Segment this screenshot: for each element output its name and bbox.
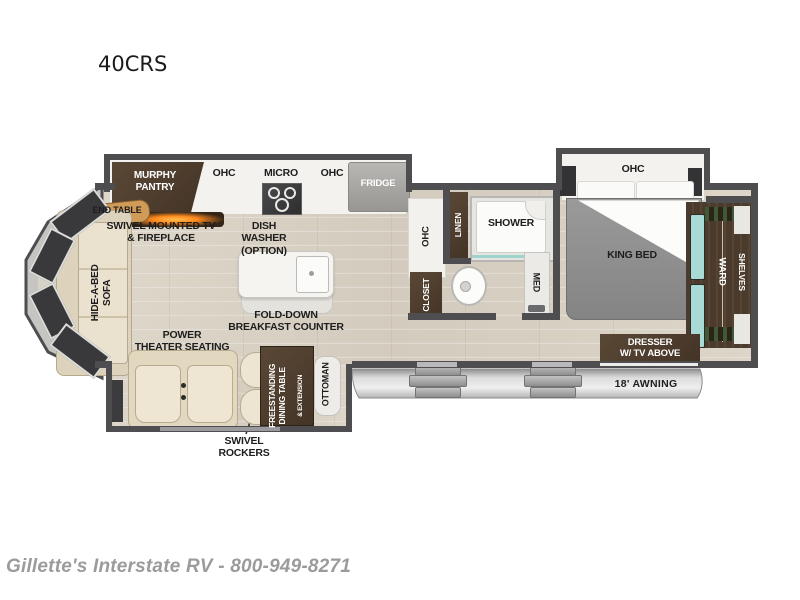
dealer-footer: Gillette's Interstate RV - 800-949-8271 [6, 556, 351, 578]
model-title: 40CRS [98, 52, 167, 76]
label-shelves: SHELVES [737, 235, 747, 309]
theater-seat-left [135, 365, 181, 423]
bedroom-slide-wall [556, 148, 562, 190]
label-awning: 18' AWNING [598, 378, 694, 390]
label-med: MED [531, 262, 542, 302]
wall-rear [751, 183, 758, 368]
kitchen-slide-wall [104, 154, 412, 160]
label-ohc: OHC [200, 167, 248, 179]
burner-icon [275, 198, 289, 212]
label-linen: LINEN [453, 196, 463, 254]
wall [406, 183, 562, 190]
entry-steps-2 [524, 375, 582, 387]
label-micro: MICRO [254, 167, 308, 179]
entry-steps-1 [415, 387, 461, 398]
cupholder-icon [181, 383, 186, 388]
label-shower: SHOWER [478, 217, 544, 229]
shelf [734, 314, 750, 344]
label-dining-table: FREESTANDING DINING TABLE & EXTENSION [257, 353, 315, 439]
label-ward: WARD [716, 241, 727, 303]
kitchen-slide-wall [406, 154, 412, 192]
label-ohc-bath: OHC [420, 217, 431, 257]
entry-door [417, 362, 457, 367]
toilet-flush-icon [460, 281, 471, 292]
label-swivel-tv-fireplace: SWIVEL MOUNTED TV & FIREPLACE [98, 220, 224, 245]
label-closet: CLOSET [421, 270, 431, 320]
burner-icon [268, 187, 280, 199]
slide-window-icon [112, 380, 123, 422]
theater-seating [128, 350, 238, 429]
label-fridge: FRIDGE [350, 178, 406, 189]
label-dish-washer: DISH WASHER (OPTION) [224, 220, 304, 257]
vanity-sink-icon [528, 305, 545, 312]
toilet-icon [451, 266, 487, 306]
bedroom-slide-wall [704, 148, 710, 190]
living-slide-wall [346, 364, 352, 432]
wall [704, 183, 758, 190]
label-king-bed: KING BED [582, 249, 682, 261]
shelf [734, 206, 750, 234]
label-hide-a-bed-sofa: HIDE-A-BED SOFA [90, 238, 114, 348]
label-dining-table-extension: & EXTENSION [297, 353, 305, 439]
cupholder-icon [181, 395, 186, 400]
entry-steps-2 [530, 387, 576, 398]
label-end-table: END TABLE [88, 205, 146, 216]
wall-bedroom-rear [706, 196, 754, 203]
kitchen-slide-wall [104, 154, 110, 192]
floorplan-page: 40CRS [0, 0, 800, 600]
wall-bath [443, 188, 450, 264]
bedroom-window-strip [600, 363, 698, 366]
faucet-icon [309, 271, 314, 276]
wall-bath-bedroom [553, 188, 560, 320]
entry-door [532, 362, 572, 367]
bedroom-slide-window-icon [560, 166, 576, 196]
label-murphy-pantry: MURPHY PANTRY [114, 170, 196, 194]
label-dining-table-main: FREESTANDING DINING TABLE [267, 353, 287, 439]
label-dresser: DRESSER W/ TV ABOVE [602, 337, 698, 359]
wardrobe-mirror-door [690, 214, 705, 280]
label-ohc-bedroom: OHC [600, 163, 666, 175]
bedroom-slide-wall [556, 148, 710, 154]
entry-steps-1 [409, 375, 467, 387]
burner-icon [284, 187, 296, 199]
label-ottoman: OTTOMAN [321, 353, 332, 415]
wall-bath [443, 258, 471, 264]
cooktop-icon [262, 183, 302, 215]
kitchen-island [238, 251, 334, 298]
theater-seat-right [187, 365, 233, 423]
label-power-theater-seating: POWER THEATER SEATING [118, 329, 246, 354]
